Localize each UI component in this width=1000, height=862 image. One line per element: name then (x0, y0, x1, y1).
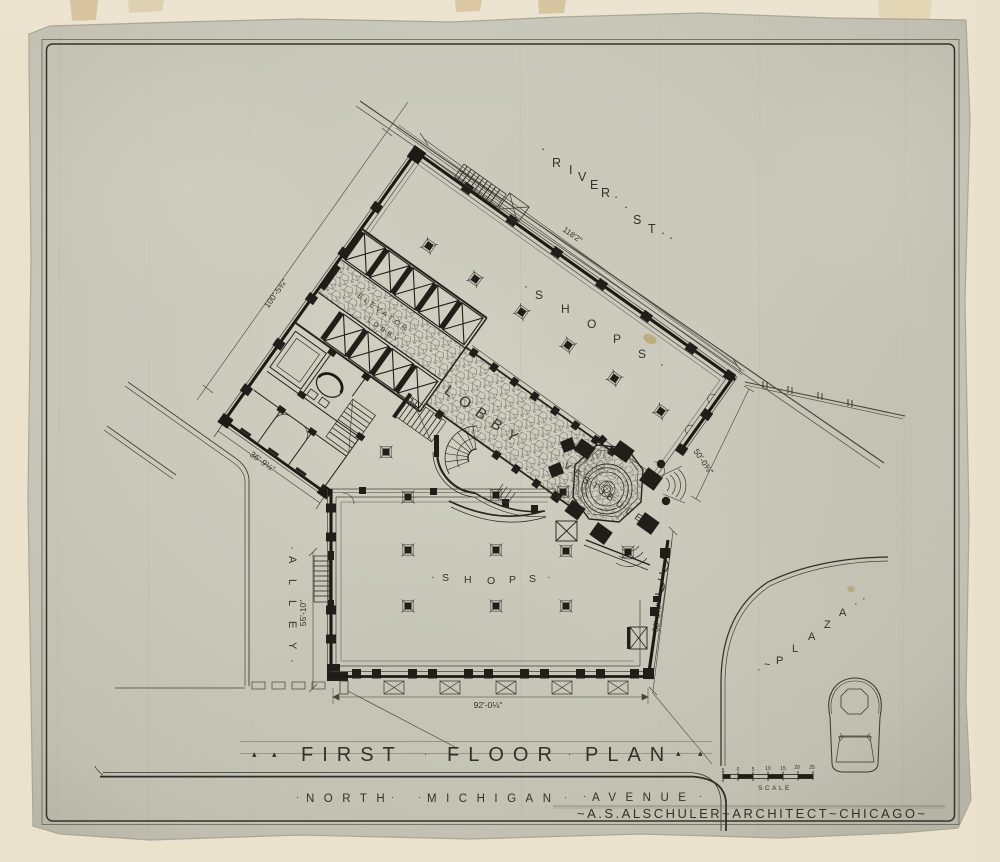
svg-text:Y: Y (286, 642, 298, 650)
svg-text:▴: ▴ (252, 749, 257, 759)
svg-text:S: S (442, 572, 449, 584)
svg-text:O: O (487, 575, 495, 587)
svg-text:·: · (699, 791, 702, 801)
svg-text:·: · (614, 190, 618, 204)
svg-text:·: · (660, 357, 664, 371)
svg-text:H: H (464, 574, 472, 586)
svg-text:·: · (564, 792, 567, 802)
svg-text:V: V (578, 170, 587, 184)
svg-text:T: T (648, 222, 656, 236)
svg-text:I: I (569, 163, 572, 177)
svg-text:▴: ▴ (272, 749, 277, 759)
svg-text:S: S (535, 288, 543, 302)
svg-text:A: A (839, 607, 847, 619)
svg-text:L: L (286, 579, 298, 585)
svg-text:Z: Z (824, 619, 831, 631)
svg-text:55'-10": 55'-10" (298, 600, 308, 626)
svg-text:P: P (613, 332, 621, 346)
svg-text:25: 25 (809, 765, 815, 771)
svg-text:FLOOR: FLOOR (447, 744, 561, 766)
svg-text:O: O (587, 317, 596, 331)
svg-text:R: R (552, 156, 561, 170)
svg-text:PLAN: PLAN (585, 744, 673, 766)
svg-text:P: P (509, 574, 516, 586)
svg-text:▴: ▴ (698, 748, 703, 758)
svg-text:A: A (286, 556, 298, 564)
svg-text:▴: ▴ (676, 748, 681, 758)
svg-text:·: · (431, 571, 435, 583)
svg-text:FIRST: FIRST (301, 744, 404, 766)
svg-text:20: 20 (794, 765, 800, 771)
svg-text:·: · (862, 593, 866, 605)
svg-text:P: P (776, 655, 783, 667)
svg-text:·: · (286, 546, 298, 550)
svg-text:R: R (601, 186, 610, 200)
svg-text:~A.S.ALSCHULER~ARCHITECT~CHICA: ~A.S.ALSCHULER~ARCHITECT~CHICAGO~ (577, 806, 928, 821)
svg-text:·: · (541, 142, 545, 156)
svg-text:15: 15 (780, 766, 786, 772)
svg-text:·: · (669, 231, 673, 245)
svg-text:MICHIGAN: MICHIGAN (427, 793, 561, 805)
svg-text:SCALE: SCALE (758, 785, 792, 792)
svg-text:E: E (590, 178, 598, 192)
svg-text:·: · (568, 749, 571, 759)
svg-text:S: S (529, 573, 536, 585)
svg-text:A: A (808, 631, 816, 643)
svg-text:·: · (661, 226, 665, 240)
svg-text:L: L (792, 643, 798, 655)
svg-text:10: 10 (765, 766, 771, 772)
svg-text:·: · (418, 792, 421, 802)
svg-text:AVENUE: AVENUE (592, 792, 695, 804)
svg-text:·: · (757, 664, 761, 676)
svg-text:·: · (854, 598, 858, 610)
svg-text:L: L (286, 600, 298, 606)
svg-text:·: · (624, 200, 628, 214)
svg-text:S: S (638, 347, 646, 361)
svg-text:·: · (296, 792, 299, 802)
svg-text:H: H (561, 302, 570, 316)
svg-text:·: · (524, 279, 528, 293)
svg-text:·: · (547, 571, 551, 583)
svg-text:·: · (391, 792, 394, 802)
svg-text:E: E (286, 621, 298, 628)
svg-text:92'-0⅛": 92'-0⅛" (474, 700, 503, 710)
svg-text:·: · (583, 791, 586, 801)
svg-text:·: · (286, 659, 298, 663)
svg-text:·: · (424, 749, 427, 759)
svg-text:NORTH: NORTH (306, 793, 394, 805)
svg-text:S: S (633, 213, 641, 227)
svg-text:~: ~ (764, 659, 770, 671)
